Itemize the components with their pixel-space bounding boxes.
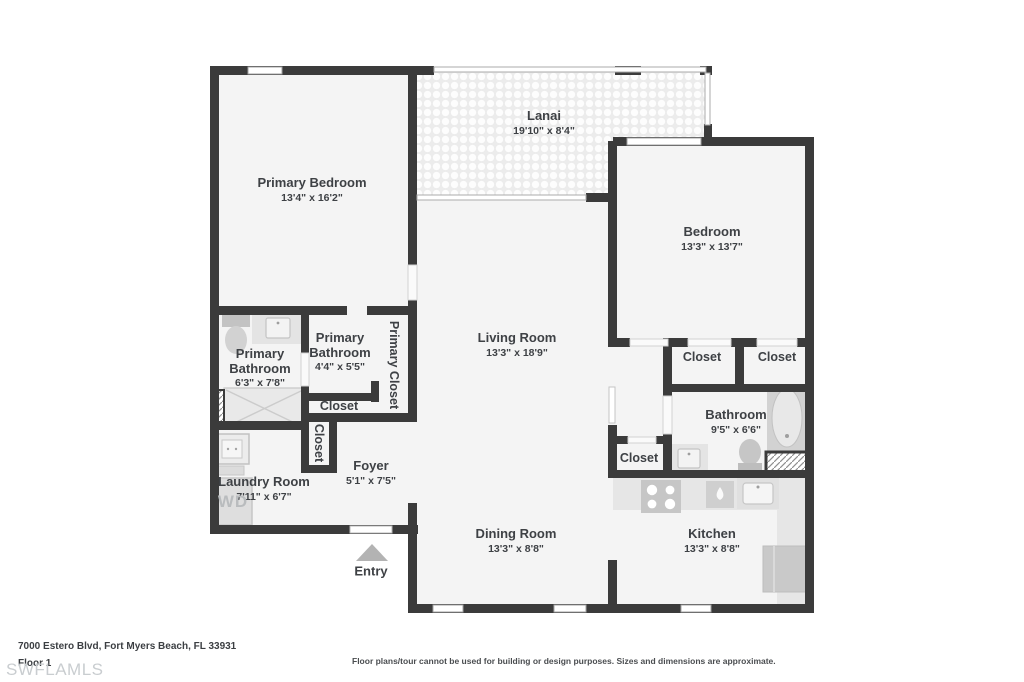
closet-label-bedroom-left: Closet xyxy=(683,350,721,364)
window xyxy=(681,605,711,612)
floor-plan-page: Primary Bedroom 13'4" x 16'2" Lanai 19'1… xyxy=(0,0,1024,682)
entry-door xyxy=(350,526,392,533)
room-label-lanai: Lanai 19'10" x 8'4" xyxy=(513,109,575,137)
window xyxy=(248,67,282,74)
room-label-dining-room: Dining Room 13'3" x 8'8" xyxy=(476,527,557,555)
room-label-foyer: Foyer 5'1" x 7'5" xyxy=(346,459,396,487)
room-name: Primary Bathroom xyxy=(217,347,303,376)
room-dims: 5'1" x 7'5" xyxy=(346,475,396,487)
door-opening xyxy=(757,339,797,346)
room-name: Laundry Room xyxy=(218,475,310,490)
window xyxy=(433,605,463,612)
stove-icon xyxy=(641,480,681,513)
door-opening xyxy=(688,339,731,346)
door-opening xyxy=(408,265,417,300)
room-name: Living Room xyxy=(478,331,557,346)
washer-dryer-label: WD xyxy=(218,492,248,512)
door-opening xyxy=(628,437,656,443)
room-label-bathroom: Bathroom 9'5" x 6'6" xyxy=(705,408,766,436)
room-name: Foyer xyxy=(346,459,396,474)
closet-label-hallway: Closet xyxy=(312,424,326,462)
room-name: Kitchen xyxy=(684,527,740,542)
room-dims: 19'10" x 8'4" xyxy=(513,125,575,137)
room-label-kitchen: Kitchen 13'3" x 8'8" xyxy=(684,527,740,555)
address-text: 7000 Estero Blvd, Fort Myers Beach, FL 3… xyxy=(18,641,236,652)
room-label-primary-bedroom: Primary Bedroom 13'4" x 16'2" xyxy=(257,176,366,204)
dishwasher-icon xyxy=(706,481,734,508)
toilet-icon-2 xyxy=(738,439,762,475)
room-name: Lanai xyxy=(513,109,575,124)
room-name: Primary Bedroom xyxy=(257,176,366,191)
vanity-sink-icon-2 xyxy=(668,444,708,474)
bathtub-icon xyxy=(767,384,808,454)
entry-label: Entry xyxy=(354,564,387,579)
lanai-railing-top xyxy=(434,67,706,72)
window xyxy=(554,605,586,612)
room-dims: 4'4" x 5'5" xyxy=(300,361,380,373)
room-name: Primary Bathroom xyxy=(300,331,380,360)
room-label-primary-bathroom-main: Primary Bathroom 6'3" x 7'8" xyxy=(217,347,303,389)
door-opening xyxy=(663,396,672,434)
room-dims: 13'3" x 8'8" xyxy=(684,543,740,555)
kitchen-sink-icon xyxy=(737,478,779,509)
slider-door xyxy=(417,195,586,200)
closet-label-linen: Closet xyxy=(320,399,358,413)
room-label-primary-bathroom-small: Primary Bathroom 4'4" x 5'5" xyxy=(300,331,380,373)
room-name: Bathroom xyxy=(705,408,766,423)
room-dims: 6'3" x 7'8" xyxy=(217,377,303,389)
window xyxy=(627,138,701,145)
closet-label-bedroom-right: Closet xyxy=(758,350,796,364)
closet-label-primary: Primary Closet xyxy=(387,321,401,409)
room-dims: 13'3" x 8'8" xyxy=(476,543,557,555)
room-label-living-room: Living Room 13'3" x 18'9" xyxy=(478,331,557,359)
room-dims: 13'3" x 18'9" xyxy=(478,347,557,359)
room-dims: 13'4" x 16'2" xyxy=(257,192,366,204)
room-name: Bedroom xyxy=(681,225,743,240)
refrigerator-icon xyxy=(763,546,808,592)
room-dims: 9'5" x 6'6" xyxy=(705,424,766,436)
closet-label-hall: Closet xyxy=(620,451,658,465)
entry-arrow-icon xyxy=(356,544,388,561)
room-name: Dining Room xyxy=(476,527,557,542)
vanity-sink-icon xyxy=(252,315,303,344)
lanai-railing-right xyxy=(705,73,710,125)
door-opening xyxy=(630,339,668,346)
door-opening xyxy=(609,387,615,423)
watermark-text: SWFLAMLS xyxy=(6,660,104,680)
room-label-bedroom: Bedroom 13'3" x 13'7" xyxy=(681,225,743,253)
disclaimer-text: Floor plans/tour cannot be used for buil… xyxy=(352,656,776,666)
utility-sink-icon xyxy=(215,434,249,464)
room-dims: 13'3" x 13'7" xyxy=(681,241,743,253)
